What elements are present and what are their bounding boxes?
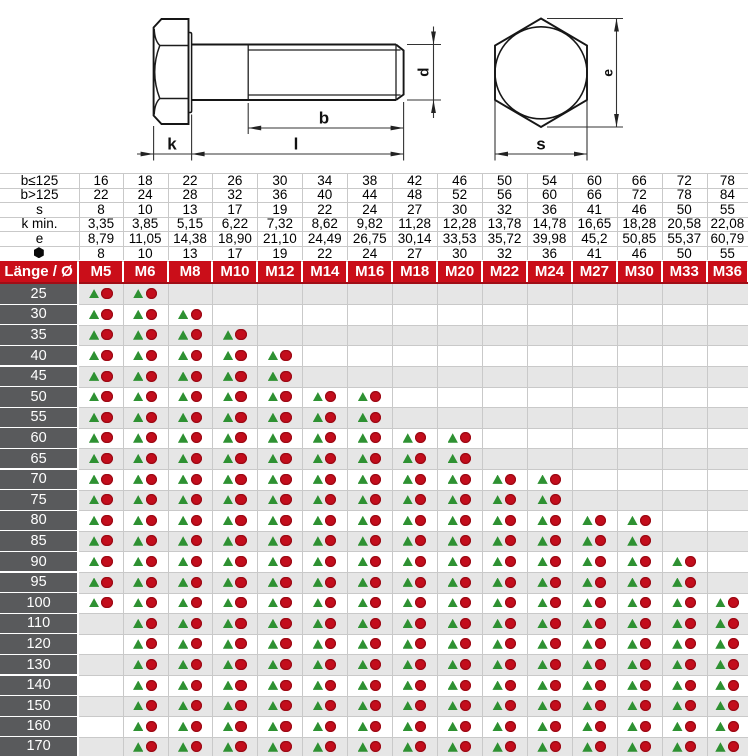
- svg-text:l: l: [294, 135, 299, 154]
- svg-text:k: k: [167, 135, 177, 154]
- svg-text:s: s: [536, 135, 545, 154]
- svg-text:b: b: [319, 109, 329, 128]
- svg-text:d: d: [416, 68, 433, 77]
- svg-text:e: e: [600, 69, 616, 77]
